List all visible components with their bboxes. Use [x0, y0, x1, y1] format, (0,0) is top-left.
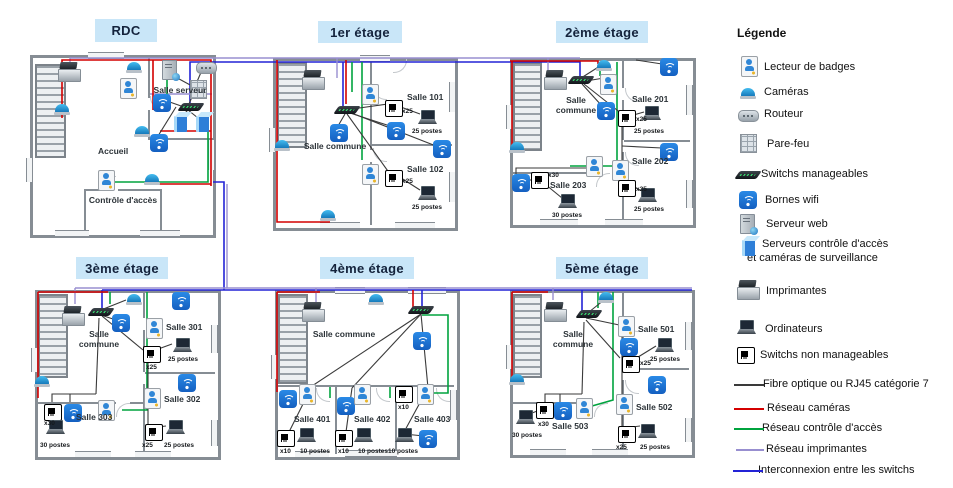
room-label: Salle 501 — [638, 324, 674, 334]
managed-switch-icon — [734, 171, 762, 179]
camera-icon — [144, 174, 160, 185]
printer-icon — [302, 70, 324, 88]
switch-count-label: x30 — [538, 421, 549, 428]
room-label-access: Contrôle d'accès — [88, 196, 158, 206]
camera-icon — [596, 60, 612, 71]
legend-label: Réseau contrôle d'accès — [762, 422, 882, 434]
postes-label: 25 postes — [640, 444, 670, 451]
badge-reader-icon — [616, 394, 633, 415]
legend-label: Lecteur de badges — [764, 61, 855, 73]
legend-label: Imprimantes — [766, 285, 827, 297]
legend-label: Réseau imprimantes — [766, 443, 867, 455]
camera-icon — [320, 210, 336, 221]
unmanaged-switch-icon — [385, 100, 403, 117]
badge-reader-icon — [741, 56, 758, 77]
camera-icon — [740, 88, 756, 99]
room-label-common: Salle commune — [543, 330, 603, 350]
unmanaged-switch-icon — [385, 170, 403, 187]
unmanaged-switch-icon — [145, 424, 163, 441]
unmanaged-switch-icon — [536, 402, 554, 419]
computer-icon — [354, 428, 373, 442]
room-label-common: Salle commune — [303, 142, 367, 152]
router-icon — [738, 110, 759, 122]
badge-reader-icon — [120, 78, 137, 99]
computer-icon — [297, 428, 316, 442]
computer-icon — [516, 410, 535, 424]
room-label-common: Salle commune — [68, 330, 130, 350]
postes-label: 25 postes — [168, 356, 198, 363]
room-label: Salle 203 — [550, 180, 586, 190]
camera-icon — [274, 140, 290, 151]
legend-label: Serveurs contrôle d'accès — [762, 238, 888, 250]
access-server-icon — [174, 116, 187, 132]
wifi-ap-icon — [660, 58, 678, 76]
switch-count-label: x10 — [280, 448, 291, 455]
postes-label: 25 postes — [412, 128, 442, 135]
room-label-common: Salle commune — [312, 330, 376, 340]
legend-label: Serveur web — [766, 218, 828, 230]
computer-icon — [166, 420, 185, 434]
wifi-ap-icon — [554, 402, 572, 420]
room-label: Salle 202 — [632, 156, 668, 166]
computer-icon — [638, 424, 657, 438]
room-label: Salle 401 — [294, 414, 330, 424]
postes-label: 25 postes — [634, 206, 664, 213]
postes-label: 25 postes — [650, 356, 680, 363]
badge-reader-icon — [354, 384, 371, 405]
floor-title-3: 3ème étage — [76, 257, 168, 279]
badge-reader-icon — [299, 384, 316, 405]
postes-label: 10 postes — [388, 448, 418, 455]
unmanaged-switch-icon — [143, 346, 161, 363]
room-label: Salle 102 — [407, 164, 443, 174]
web-server-icon — [162, 60, 177, 80]
printer-icon — [302, 302, 324, 320]
computer-icon — [418, 110, 437, 124]
access-server-icon — [196, 116, 209, 132]
wifi-ap-icon — [419, 430, 437, 448]
switch-count-label: x25 — [402, 108, 413, 115]
switch-count-label: x10 — [338, 448, 349, 455]
room-label: Salle 402 — [354, 414, 390, 424]
wifi-ap-icon — [150, 134, 168, 152]
router-icon — [196, 62, 217, 74]
postes-label: 10 postes — [300, 448, 330, 455]
switch-count-label: x25 — [402, 178, 413, 185]
legend-label: Réseau caméras — [767, 402, 850, 414]
badge-reader-icon — [586, 156, 603, 177]
postes-label: 25 postes — [634, 128, 664, 135]
legend-label: Fibre optique ou RJ45 catégorie 7 — [763, 378, 929, 390]
computer-icon — [655, 338, 674, 352]
wifi-ap-icon — [153, 94, 171, 112]
fiber-line-swatch — [734, 384, 764, 386]
printer-icon — [544, 70, 566, 88]
room-label-lobby: Accueil — [98, 146, 128, 156]
wifi-ap-icon — [387, 122, 405, 140]
camera-icon — [134, 126, 150, 137]
camera-line-swatch — [734, 408, 764, 410]
badge-reader-icon — [618, 316, 635, 337]
badge-reader-icon — [600, 74, 617, 95]
wifi-ap-icon — [337, 397, 355, 415]
access-server-icon — [742, 240, 755, 256]
unmanaged-switch-icon — [737, 347, 755, 364]
printer-line-swatch — [736, 449, 764, 451]
wifi-ap-icon — [433, 140, 451, 158]
printer-icon — [544, 302, 566, 320]
switch-count-label: x30 — [44, 420, 55, 427]
room-label-server: Salle serveur — [150, 86, 210, 96]
floor-title-rdc: RDC — [95, 19, 157, 42]
wifi-ap-icon — [330, 124, 348, 142]
postes-label: 25 postes — [412, 204, 442, 211]
web-server-icon — [740, 214, 755, 234]
floor-title-1: 1er étage — [318, 21, 402, 43]
unmanaged-switch-icon — [395, 386, 413, 403]
legend-label: Switchs manageables — [761, 168, 868, 180]
unmanaged-switch-icon — [622, 356, 640, 373]
camera-icon — [126, 294, 142, 305]
postes-label: 30 postes — [512, 432, 542, 439]
wifi-ap-icon — [648, 376, 666, 394]
camera-icon — [509, 374, 525, 385]
room-label: Salle 502 — [636, 402, 672, 412]
camera-icon — [54, 104, 70, 115]
wifi-ap-icon — [620, 338, 638, 356]
computer-icon — [395, 428, 414, 442]
legend-label: Ordinateurs — [765, 323, 822, 335]
postes-label: 30 postes — [552, 212, 582, 219]
unmanaged-switch-icon — [277, 430, 295, 447]
wifi-ap-icon — [178, 374, 196, 392]
switch-count-label: x25 — [636, 116, 647, 123]
stairs-icon — [513, 62, 542, 151]
computer-icon — [173, 338, 192, 352]
camera-icon — [598, 292, 614, 303]
badge-reader-icon — [98, 170, 115, 191]
camera-icon — [509, 142, 525, 153]
switch-count-label: x25 — [142, 442, 153, 449]
firewall-icon — [740, 134, 757, 153]
legend-label: Switchs non manageables — [760, 349, 888, 361]
interconnect-line-swatch — [733, 470, 763, 472]
room-label-common: Salle commune — [546, 96, 606, 116]
room-label: Salle 503 — [552, 421, 588, 431]
wifi-ap-icon — [413, 332, 431, 350]
unmanaged-switch-icon — [44, 404, 62, 421]
legend-label: Pare-feu — [767, 138, 809, 150]
wifi-ap-icon — [172, 292, 190, 310]
room-label: Salle 301 — [166, 322, 202, 332]
stairs-icon — [513, 294, 542, 378]
camera-icon — [126, 62, 142, 73]
wifi-ap-icon — [739, 191, 757, 209]
printer-icon — [737, 280, 759, 298]
postes-label: 30 postes — [40, 442, 70, 449]
floor-title-2: 2ème étage — [556, 21, 648, 43]
badge-reader-icon — [146, 318, 163, 339]
unmanaged-switch-icon — [335, 430, 353, 447]
room-label: Salle 101 — [407, 92, 443, 102]
legend-title: Légende — [737, 26, 786, 40]
badge-reader-icon — [362, 84, 379, 105]
floor-title-4: 4ème étage — [320, 257, 414, 279]
wifi-ap-icon — [279, 390, 297, 408]
legend-label: Bornes wifi — [765, 194, 819, 206]
room-label: Salle 303 — [76, 412, 112, 422]
printer-icon — [58, 62, 80, 80]
unmanaged-switch-icon — [531, 172, 549, 189]
computer-icon — [737, 320, 756, 334]
legend-label: et caméras de surveillance — [747, 252, 878, 264]
unmanaged-switch-icon — [618, 110, 636, 127]
computer-icon — [558, 194, 577, 208]
unmanaged-switch-icon — [618, 426, 636, 443]
switch-count-label: x30 — [548, 172, 559, 179]
badge-reader-icon — [417, 384, 434, 405]
switch-count-label: x10 — [398, 404, 409, 411]
camera-icon — [368, 294, 384, 305]
unmanaged-switch-icon — [618, 180, 636, 197]
postes-label: 10 postes — [358, 448, 388, 455]
postes-label: 25 postes — [164, 442, 194, 449]
wifi-ap-icon — [512, 174, 530, 192]
badge-reader-icon — [612, 160, 629, 181]
room-label: Salle 302 — [164, 394, 200, 404]
badge-reader-icon — [576, 398, 593, 419]
switch-count-label: x25 — [636, 186, 647, 193]
badge-reader-icon — [144, 388, 161, 409]
legend-label: Caméras — [764, 86, 809, 98]
switch-count-label: x25 — [146, 364, 157, 371]
camera-icon — [34, 376, 50, 387]
printer-icon — [62, 306, 84, 324]
floor-title-5: 5ème étage — [556, 257, 648, 279]
room-label: Salle 403 — [414, 414, 450, 424]
switch-count-label: x25 — [616, 444, 627, 451]
computer-icon — [418, 186, 437, 200]
room-label: Salle 201 — [632, 94, 668, 104]
legend-label: Routeur — [764, 108, 803, 120]
access-line-swatch — [734, 428, 764, 430]
badge-reader-icon — [362, 164, 379, 185]
legend-label: Interconnexion entre les switchs — [758, 464, 915, 476]
